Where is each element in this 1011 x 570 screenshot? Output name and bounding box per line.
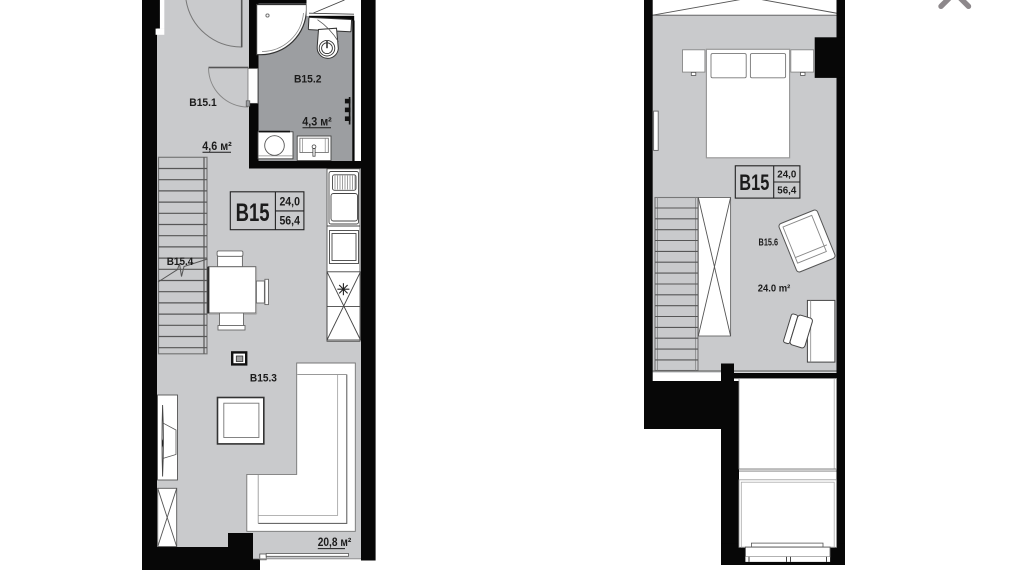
svg-text:B15.3: B15.3 [250,373,277,385]
svg-text:24,0: 24,0 [777,168,796,180]
svg-text:20,8 м²: 20,8 м² [318,535,352,549]
svg-text:56,4: 56,4 [777,185,796,197]
svg-text:24.0 m²: 24.0 m² [758,283,791,295]
svg-text:24,0: 24,0 [279,196,300,208]
svg-text:B15.2: B15.2 [294,74,322,86]
svg-text:B15: B15 [739,170,769,195]
svg-text:B15.4: B15.4 [167,256,194,268]
svg-text:4,3 м²: 4,3 м² [302,115,332,129]
svg-text:56,4: 56,4 [279,216,300,228]
svg-text:B15: B15 [236,199,270,227]
svg-text:4,6 м²: 4,6 м² [202,139,232,153]
svg-text:B15.1: B15.1 [189,97,217,109]
svg-text:B15.6: B15.6 [759,238,779,249]
